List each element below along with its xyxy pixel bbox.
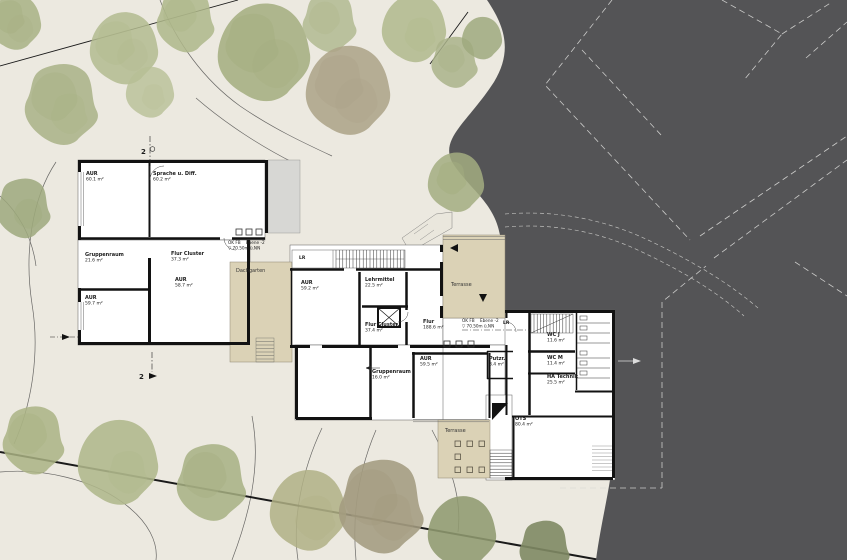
room-label-gruppenraum-1: Gruppenraum xyxy=(85,252,124,258)
terrace-label-roof-garden: Dachgarten xyxy=(236,268,265,274)
room-label-putzraum: Putzr. xyxy=(489,356,505,362)
room-area-ha-technik: 25.5 m² xyxy=(547,380,565,386)
room-area-aur-5: 59.5 m² xyxy=(420,362,438,368)
section-label-top: 2 xyxy=(141,148,146,156)
room-area-gruppenraum-1: 21.6 m² xyxy=(85,258,103,264)
room-label-lr-2: LR xyxy=(503,320,510,326)
room-label-sprache: Sprache u. Diff. xyxy=(153,171,197,177)
room-label-aur-5: AUR xyxy=(420,356,432,362)
level-height: ▽ 70.50m ü.NN xyxy=(228,246,260,251)
level-ok-fb: OK FB xyxy=(462,318,475,323)
terrace-label-northeast: Terrasse xyxy=(450,282,472,288)
level-marker-2: OK FB Ebene -2 ▽ 70.50m ü.NN xyxy=(462,318,499,329)
room-area-gruppenraum-2: 16.0 m² xyxy=(372,375,390,381)
room-area-flur-cluster-2: 37.4 m² xyxy=(365,328,383,334)
room-area-aur-3: 59.7 m² xyxy=(85,301,103,307)
room-label-flur: Flur xyxy=(423,319,435,325)
room-label-flur-cluster-1: Flur Cluster xyxy=(171,251,205,257)
room-area-aur-2: 58.7 m² xyxy=(175,283,193,289)
level-marker-1: OK FB Ebene -2 ▽ 70.50m ü.NN xyxy=(228,240,265,251)
terrace-label-south: Terrasse xyxy=(444,428,466,434)
level-ebene: Ebene -2 xyxy=(480,318,499,323)
level-ok-fb: OK FB xyxy=(228,240,241,245)
room-label-ha-technik: HA Technik xyxy=(547,374,579,380)
terrace-roof-garden xyxy=(230,262,292,362)
stairs-main xyxy=(336,250,404,268)
room-label-lr-1: LR xyxy=(299,255,306,261)
room-plate xyxy=(505,310,615,480)
room-label-aur-4: AUR xyxy=(301,280,313,286)
room-label-lehrmittel: Lehrmittel xyxy=(365,277,395,283)
room-area-aur-4: 59.2 m² xyxy=(301,286,319,292)
room-area-lehrmittel: 22.5 m² xyxy=(365,283,383,289)
room-area-wc-j: 11.6 m² xyxy=(547,338,565,344)
level-ebene: Ebene -2 xyxy=(246,240,265,245)
room-label-aur-3: AUR xyxy=(85,295,97,301)
room-label-wc-j: WC J xyxy=(547,332,560,338)
room-label-flur-cluster-2: Flur Cluster xyxy=(365,322,399,328)
room-area-sprache: 60.2 m² xyxy=(153,177,171,183)
room-label-aur-2: AUR xyxy=(175,277,187,283)
room-area-aur-1: 60.1 m² xyxy=(86,177,104,183)
wall-band xyxy=(268,160,300,233)
site-plan-canvas: 2 2 AUR 60.1 m² Sprache u. Diff. 60.2 m²… xyxy=(0,0,847,560)
room-area-ots: 80.4 m² xyxy=(515,422,533,428)
room-label-ots: OTS xyxy=(515,416,527,422)
room-area-flur-cluster-1: 37.3 m² xyxy=(171,257,189,263)
level-height: ▽ 70.50m ü.NN xyxy=(462,324,494,329)
room-area-putzraum: 8.4 m² xyxy=(489,362,504,368)
room-label-aur-1: AUR xyxy=(86,171,98,177)
room-area-flur: 188.6 m² xyxy=(423,325,444,331)
room-area-wc-m: 11.4 m² xyxy=(547,361,565,367)
room-label-gruppenraum-2: Gruppenraum xyxy=(372,369,411,375)
section-label-bottom: 2 xyxy=(139,373,144,381)
room-label-wc-m: WC M xyxy=(547,355,563,361)
floor-plan-drawing: 2 2 AUR 60.1 m² Sprache u. Diff. 60.2 m²… xyxy=(0,0,847,560)
